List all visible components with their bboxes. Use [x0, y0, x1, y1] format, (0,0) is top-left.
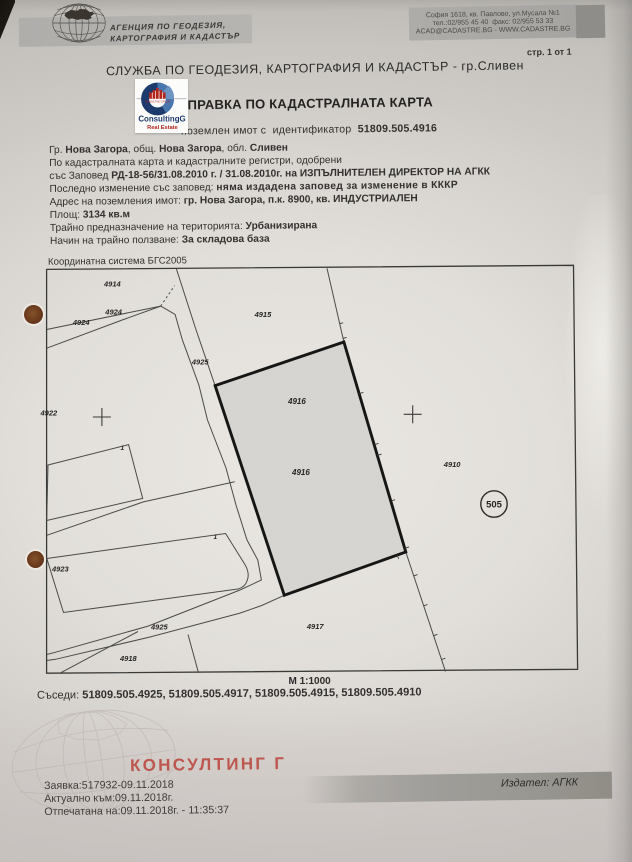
- svg-text:1: 1: [121, 445, 125, 452]
- svg-text:4924: 4924: [104, 308, 123, 317]
- svg-text:4916: 4916: [291, 468, 310, 477]
- svg-text:4925: 4925: [150, 622, 169, 631]
- svg-text:4923: 4923: [51, 565, 70, 574]
- svg-text:4924: 4924: [72, 318, 91, 327]
- svg-text:4910: 4910: [443, 460, 462, 469]
- svg-text:4922: 4922: [40, 409, 59, 418]
- svg-text:4916: 4916: [287, 397, 306, 406]
- svg-text:1: 1: [214, 534, 218, 541]
- svg-text:505: 505: [486, 500, 503, 511]
- svg-text:4925: 4925: [191, 357, 210, 366]
- svg-text:4915: 4915: [254, 310, 273, 319]
- svg-text:4917: 4917: [306, 622, 325, 631]
- svg-text:4918: 4918: [119, 654, 138, 663]
- svg-text:4914: 4914: [103, 280, 122, 289]
